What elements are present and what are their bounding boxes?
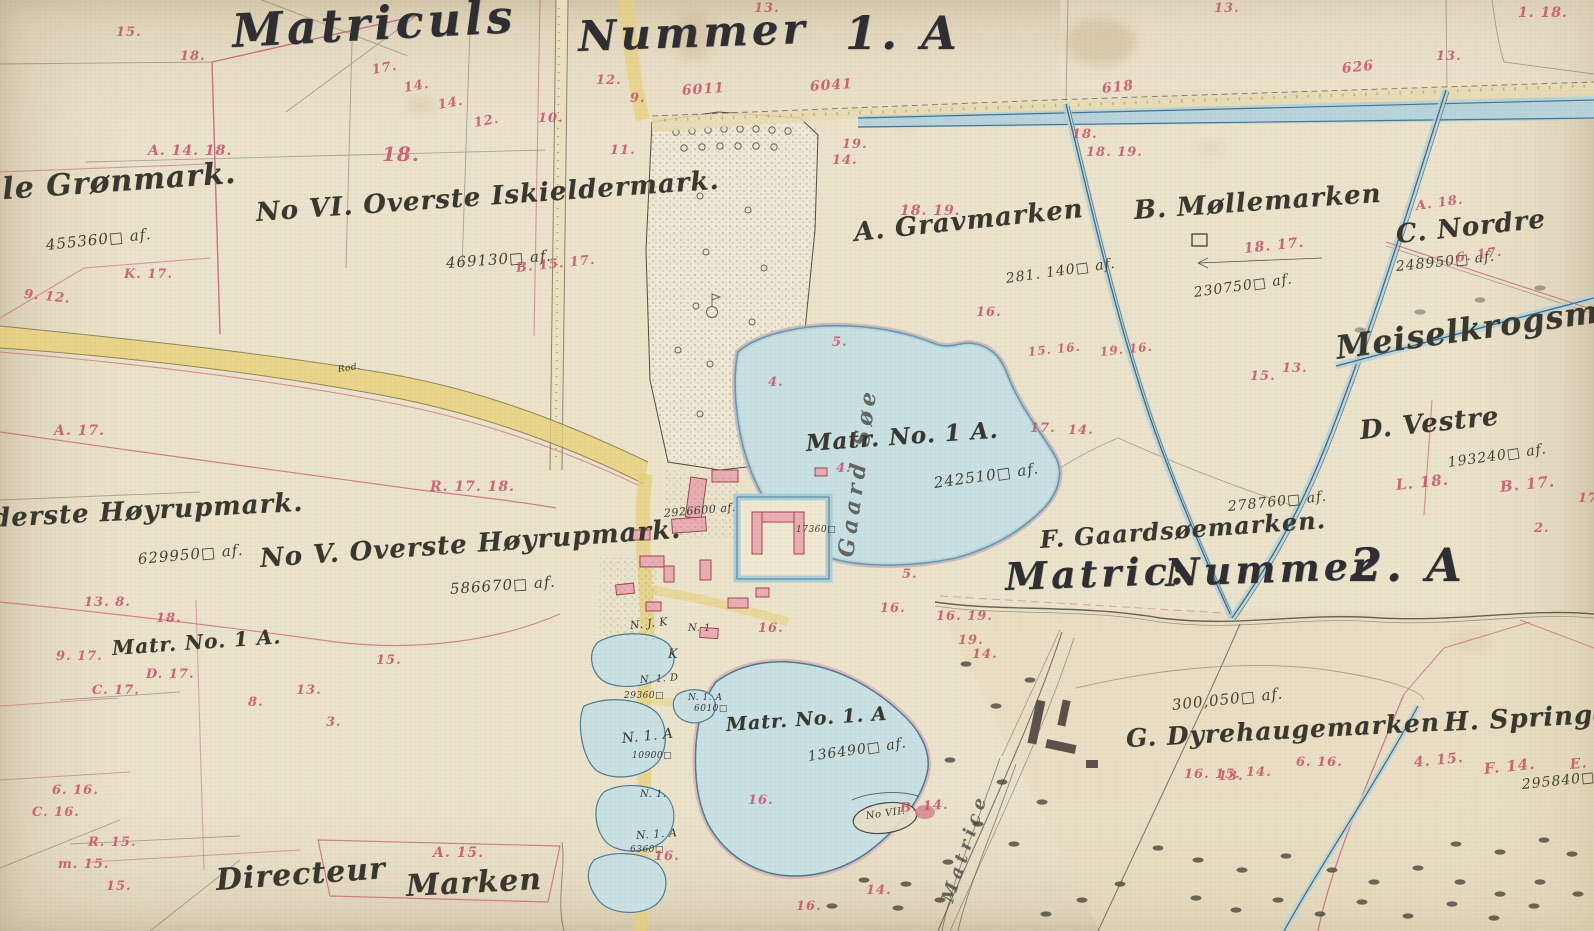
map-artwork: Matriculs Nummer 1. A — historisk matrik… [0, 0, 1594, 931]
cadastral-map: Matriculs Nummer 1. A — historisk matrik… [0, 0, 1594, 931]
